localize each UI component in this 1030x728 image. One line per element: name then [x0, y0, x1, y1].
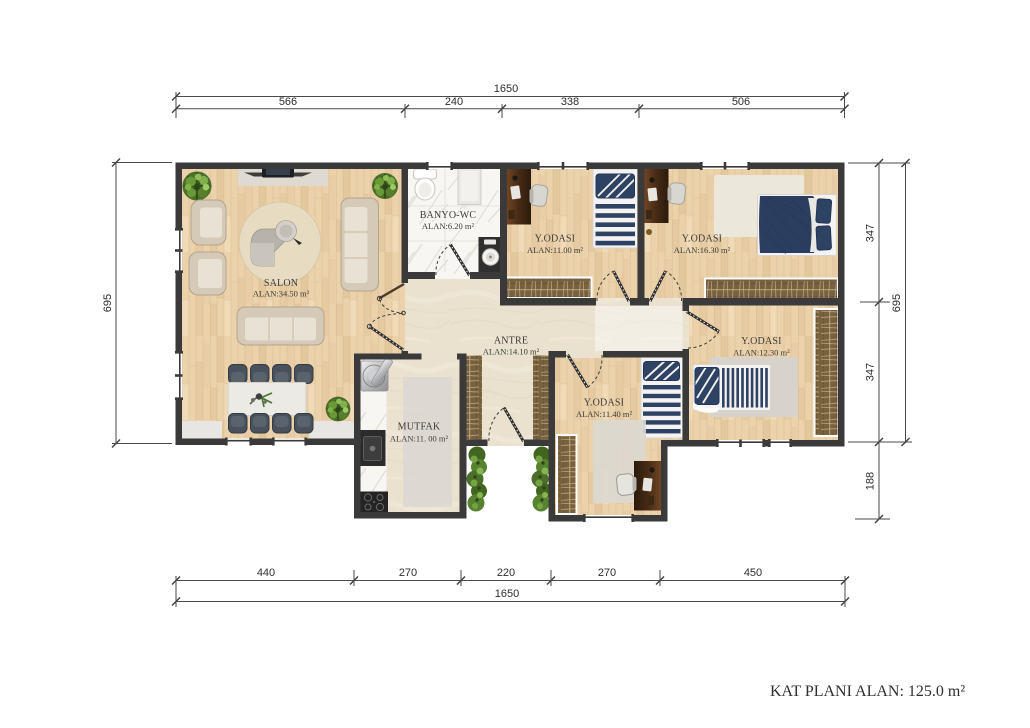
- svg-text:1650: 1650: [494, 83, 518, 95]
- svg-text:ALAN:6.20 m²: ALAN:6.20 m²: [422, 221, 475, 231]
- svg-text:695: 695: [102, 294, 114, 312]
- svg-text:188: 188: [865, 472, 877, 490]
- svg-text:BANYO-WC: BANYO-WC: [420, 210, 477, 221]
- svg-text:Y.ODASI: Y.ODASI: [584, 398, 624, 409]
- svg-text:ALAN:34.50 m²: ALAN:34.50 m²: [253, 289, 310, 299]
- svg-text:566: 566: [279, 96, 297, 108]
- svg-text:SALON: SALON: [264, 278, 298, 289]
- svg-text:240: 240: [445, 96, 463, 108]
- svg-text:220: 220: [497, 567, 515, 579]
- svg-text:KAT PLANI ALAN: 125.0 m²: KAT PLANI ALAN: 125.0 m²: [770, 683, 965, 700]
- svg-text:Y.ODASI: Y.ODASI: [741, 336, 781, 347]
- svg-text:347: 347: [865, 363, 877, 381]
- svg-text:270: 270: [399, 567, 417, 579]
- svg-text:695: 695: [891, 294, 903, 312]
- svg-text:270: 270: [598, 567, 616, 579]
- svg-text:347: 347: [865, 224, 877, 242]
- svg-text:ALAN:14.10 m²: ALAN:14.10 m²: [483, 347, 540, 357]
- svg-text:ALAN:11.40 m²: ALAN:11.40 m²: [576, 409, 633, 419]
- svg-text:ALAN:11. 00 m²: ALAN:11. 00 m²: [390, 434, 449, 444]
- svg-text:Y.ODASI: Y.ODASI: [535, 234, 575, 245]
- svg-text:506: 506: [732, 96, 750, 108]
- svg-text:ALAN:16.30 m²: ALAN:16.30 m²: [674, 245, 731, 255]
- svg-text:450: 450: [744, 567, 762, 579]
- svg-text:338: 338: [561, 96, 579, 108]
- svg-text:440: 440: [257, 567, 275, 579]
- svg-text:1650: 1650: [495, 588, 519, 600]
- svg-text:ANTRE: ANTRE: [494, 336, 528, 347]
- svg-text:MUTFAK: MUTFAK: [398, 422, 441, 433]
- svg-text:ALAN:11.00 m²: ALAN:11.00 m²: [527, 245, 584, 255]
- svg-text:Y.ODASI: Y.ODASI: [682, 234, 722, 245]
- svg-text:ALAN:12.30 m²: ALAN:12.30 m²: [733, 348, 790, 358]
